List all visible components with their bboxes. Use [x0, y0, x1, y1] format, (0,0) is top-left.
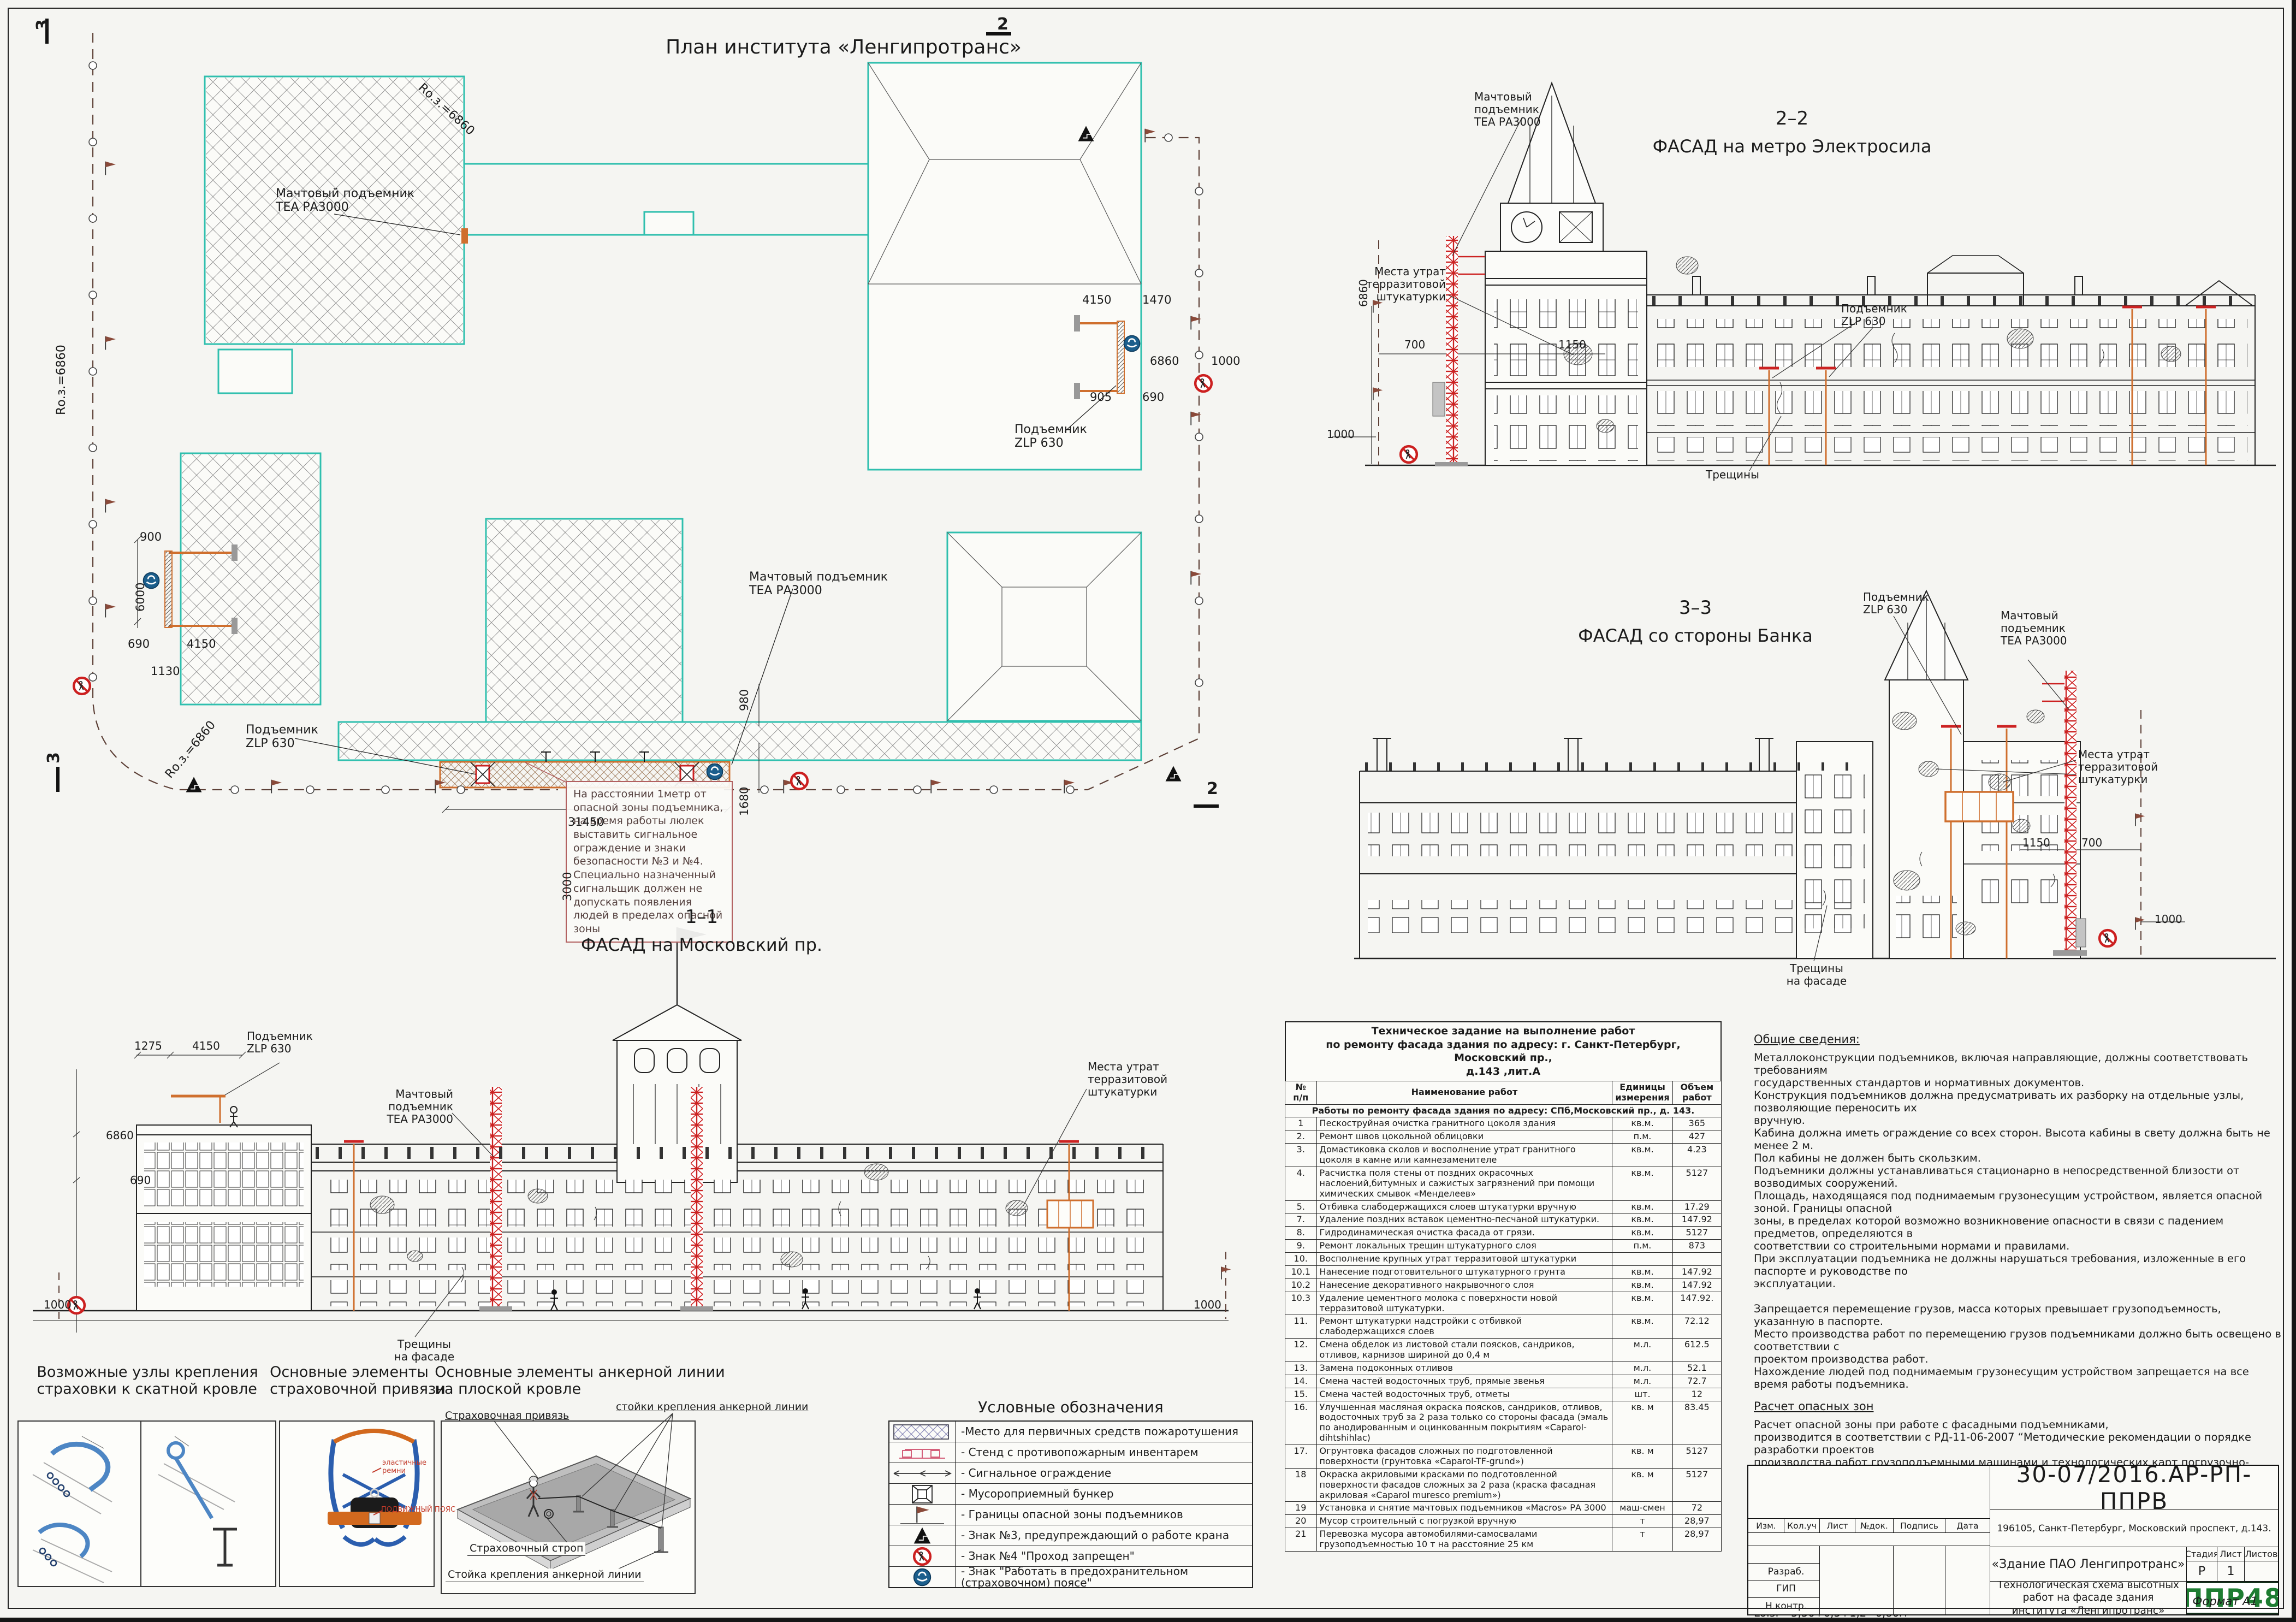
general-info-line: вручную.: [1754, 1114, 2281, 1127]
sign3-icon: [889, 1525, 956, 1546]
legend-item: -Место для первичных средств пожаротушен…: [889, 1422, 1252, 1442]
signal-fence-icon: [889, 1463, 956, 1483]
general-info-line: государственных стандартов и нормативных…: [1754, 1076, 2281, 1089]
sgn-no-icon: [1401, 446, 1417, 463]
legend-item-text: - Знак №4 "Проход запрещен": [956, 1550, 1140, 1562]
tb-col-koluch: Кол.уч: [1784, 1518, 1819, 1532]
work-table-row: 9.Ремонт локальных трещин штукатурного с…: [1285, 1240, 1722, 1253]
work-table-row: 10.3Удаление цементного молока с поверхн…: [1285, 1292, 1722, 1315]
col-header-volume: Объем работ: [1672, 1081, 1721, 1104]
stage-label: Стадия: [2186, 1547, 2217, 1561]
sheet-label: Лист: [2217, 1547, 2244, 1561]
work-table-row: 10.1Нанесение подготовительного штукатур…: [1285, 1265, 1722, 1278]
tb-col-data: Дата: [1945, 1518, 1990, 1532]
work-table-row: 21Перевозка мусора автомобилями-самосвал…: [1285, 1528, 1722, 1552]
flag-icon: [1221, 1267, 1231, 1280]
flag-icon: [1373, 388, 1383, 400]
drawing-sheet: На расстоянии 1метр от опасной зоны подъ…: [0, 0, 2296, 1622]
work-table-title-line: Техническое задание на выполнение работ: [1290, 1025, 1716, 1038]
legend-item-text: - Стенд с противопожарным инвентарем: [956, 1447, 1204, 1458]
sheets-total: [2244, 1561, 2278, 1581]
table-subheader: Работы по ремонту фасада здания по адрес…: [1285, 1104, 1722, 1117]
work-table-row: 15.Смена частей водосточных труб, отметы…: [1285, 1388, 1722, 1401]
sheet-edge: [0, 1618, 2296, 1622]
sheet-number: 1: [2217, 1561, 2244, 1581]
col-header-unit: Единицы измерения: [1612, 1081, 1672, 1104]
work-table-title-line: по ремонту фасада здания по адресу: г. С…: [1290, 1038, 1716, 1065]
legend: Условные обозначения -Место для первичны…: [888, 1398, 1253, 1588]
work-table-row: 8.Гидродинамическая очистка фасада от гр…: [1285, 1227, 1722, 1240]
general-info-line: Место производства работ по перемещению …: [1754, 1328, 2281, 1353]
sheet-edge: [2292, 0, 2296, 1622]
work-table-row: 5.Отбивка слабодержащихся слоев штукатур…: [1285, 1200, 1722, 1213]
general-info-line: эксплуатации.: [1754, 1277, 2281, 1290]
tb-col-ndok: №док.: [1855, 1518, 1893, 1532]
legend-item: - Знак №4 "Проход запрещен": [889, 1546, 1252, 1567]
format-label: Формат А1: [2192, 1595, 2258, 1608]
general-info-line: Нахождение людей под поднимаемым грузоне…: [1754, 1365, 2281, 1390]
facade-3-3-drawing: [1354, 591, 2276, 961]
sgn-warn-icon: [186, 777, 202, 792]
work-spec-table: Техническое задание на выполнение работ …: [1285, 1021, 1722, 1552]
flag-icon: [105, 499, 116, 513]
legend-item: - Границы опасной зоны подъемников: [889, 1505, 1252, 1525]
general-info-line: Площадь, находящаяся под поднимаемым гру…: [1754, 1189, 2281, 1215]
legend-item-text: - Сигнальное ограждение: [956, 1467, 1117, 1479]
sgn-belt-icon: [1124, 336, 1140, 352]
sgn-belt-icon: [144, 573, 159, 589]
general-info-line: Запрещается перемещение грузов, масса ко…: [1754, 1303, 2281, 1328]
general-info-heading: Общие сведения:: [1754, 1033, 2281, 1046]
work-table-row: 16.Улучшенная масляная окраска поясков, …: [1285, 1401, 1722, 1445]
work-table-row: 12.Смена обделок из листовой стали пояск…: [1285, 1339, 1722, 1362]
legend-item-text: - Границы опасной зоны подъемников: [956, 1509, 1189, 1520]
legend-item: - Знак №3, предупреждающий о работе кран…: [889, 1525, 1252, 1546]
danger-calc-line: Расчет опасной зоны при работе с фасадны…: [1754, 1418, 2281, 1431]
danger-calc-line: производится в соответствии с РД-11-06-2…: [1754, 1431, 2281, 1456]
stage-value: Р: [2186, 1561, 2217, 1581]
flag-icon: [1373, 300, 1383, 313]
tb-col-list: Лист: [1819, 1518, 1855, 1532]
site-plan-drawing: [47, 19, 1219, 813]
sgn-belt-icon: [707, 764, 723, 780]
harness-sign-icon: [889, 1567, 956, 1587]
flag-icon: [1145, 129, 1155, 143]
object-address: 196105, Санкт-Петербург, Московский прос…: [1990, 1509, 2278, 1547]
work-table-row: 1Пескоструйная очистка гранитного цоколя…: [1285, 1117, 1722, 1130]
danger-flag-icon: [889, 1505, 956, 1525]
work-table-row: 17.Огрунтовка фасадов сложных по подгото…: [1285, 1445, 1722, 1469]
work-table-row: 4.Расчистка поля стены от поздних окрасо…: [1285, 1167, 1722, 1200]
sgn-no-icon: [68, 1297, 85, 1313]
general-info-line: Кабина должна иметь ограждение со всех с…: [1754, 1127, 2281, 1152]
flag-icon: [2135, 917, 2145, 930]
work-table-row: 14.Смена частей водосточных труб, прямые…: [1285, 1375, 1722, 1388]
general-info-line: Металлоконструкции подъемников, включая …: [1754, 1051, 2281, 1076]
general-info-line: При эксплуатации подъемника не должны на…: [1754, 1252, 2281, 1277]
flag-icon: [1191, 316, 1201, 330]
flag-icon: [105, 336, 116, 350]
tb-role-gip: ГИП: [1748, 1580, 1819, 1597]
col-header-num: № п/п: [1285, 1081, 1317, 1104]
work-table-row: 18Окраска акриловыми красками по подгото…: [1285, 1468, 1722, 1502]
sign4-icon: [889, 1546, 956, 1566]
work-table-row: 19Установка и снятие мачтовых подъемнико…: [1285, 1502, 1722, 1515]
general-info-line: Пол кабины не должен быть скользким.: [1754, 1152, 2281, 1164]
facade-1-1-drawing: [33, 927, 1231, 1337]
sgn-no-icon: [2099, 930, 2116, 946]
tb-col-izm: Изм.: [1748, 1518, 1784, 1532]
fire-area-icon: [889, 1422, 956, 1442]
tb-col-podpis: Подпись: [1893, 1518, 1945, 1532]
general-info-line: [1754, 1290, 2281, 1303]
bunker-icon: [889, 1484, 956, 1504]
document-number: 30-07/2016.АР-РП-ППРВ: [1990, 1466, 2278, 1509]
legend-item-text: -Место для первичных средств пожаротушен…: [956, 1426, 1244, 1437]
legend-item-text: - Мусороприемный бункер: [956, 1488, 1119, 1500]
col-header-name: Наименование работ: [1316, 1081, 1612, 1104]
fire-stand-icon: [889, 1442, 956, 1463]
general-info-line: проектом производства работ.: [1754, 1353, 2281, 1365]
legend-item: - Стенд с противопожарным инвентарем: [889, 1442, 1252, 1463]
legend-item-text: - Знак №3, предупреждающий о работе кран…: [956, 1530, 1235, 1541]
work-table-title-line: д.143 ,лит.А: [1290, 1065, 1716, 1079]
legend-title: Условные обозначения: [888, 1398, 1253, 1416]
tb-role-razrab: Разраб.: [1748, 1563, 1819, 1580]
work-table-row: 20Мусор строительный с погрузкой вручную…: [1285, 1515, 1722, 1528]
facade-2-2-drawing: [1332, 83, 2276, 471]
object-name: «Здание ПАО Ленгипротранс»: [1990, 1547, 2186, 1581]
general-info-line: зоны, в пределах которой возможно возник…: [1754, 1215, 2281, 1240]
tb-role-nkontr: Н.контр.: [1748, 1597, 1819, 1615]
sgn-warn-icon: [1166, 766, 1182, 782]
title-block: Изм. Кол.уч Лист №док. Подпись Дата Разр…: [1747, 1465, 2279, 1615]
flag-icon: [1191, 571, 1201, 585]
legend-item: - Мусороприемный бункер: [889, 1484, 1252, 1505]
sgn-no-icon: [1195, 375, 1212, 392]
work-table-row: 10.2Нанесение декоративного накрывочного…: [1285, 1278, 1722, 1292]
sgn-no-icon: [74, 678, 90, 694]
detail-panels-drawing: [18, 1413, 695, 1594]
flag-icon: [271, 780, 282, 794]
plan-warning-note: На расстоянии 1метр от опасной зоны подъ…: [566, 781, 733, 943]
work-table-row: 2.Ремонт швов цокольной облицовкип.м.427: [1285, 1130, 1722, 1144]
work-table-row: 3.Домастиковка сколов и восполнение утра…: [1285, 1144, 1722, 1167]
flag-icon: [931, 780, 941, 794]
legend-item: - Сигнальное ограждение: [889, 1463, 1252, 1484]
legend-item-text: - Знак "Работать в предохранительном (ст…: [956, 1566, 1252, 1589]
sgn-no-icon: [791, 773, 808, 789]
sheets-label: Листов: [2244, 1547, 2278, 1561]
legend-item: - Знак "Работать в предохранительном (ст…: [889, 1567, 1252, 1587]
general-info-line: соответствии со строительными нормами и …: [1754, 1240, 2281, 1252]
danger-calc-heading: Расчет опасных зон: [1754, 1400, 2281, 1413]
work-table-row: 10.Восполнение крупных утрат терразитово…: [1285, 1253, 1722, 1266]
flag-icon: [105, 162, 116, 175]
flag-icon: [2135, 814, 2145, 826]
sheet-title: Технологическая схема высотных работ на …: [1990, 1581, 2186, 1614]
general-info-line: Подъемники должны устанавливаться стацио…: [1754, 1164, 2281, 1189]
flag-icon: [1191, 412, 1201, 425]
work-table-row: 13.Замена подоконных отливовм.л.52.1: [1285, 1361, 1722, 1375]
work-table-row: 7.Удаление поздних вставок цементно-песч…: [1285, 1213, 1722, 1227]
work-table-row: 11.Ремонт штукатурки надстройки с отбивк…: [1285, 1315, 1722, 1339]
general-info-line: Конструкция подъемников должна предусмат…: [1754, 1089, 2281, 1114]
flag-icon: [105, 604, 116, 618]
